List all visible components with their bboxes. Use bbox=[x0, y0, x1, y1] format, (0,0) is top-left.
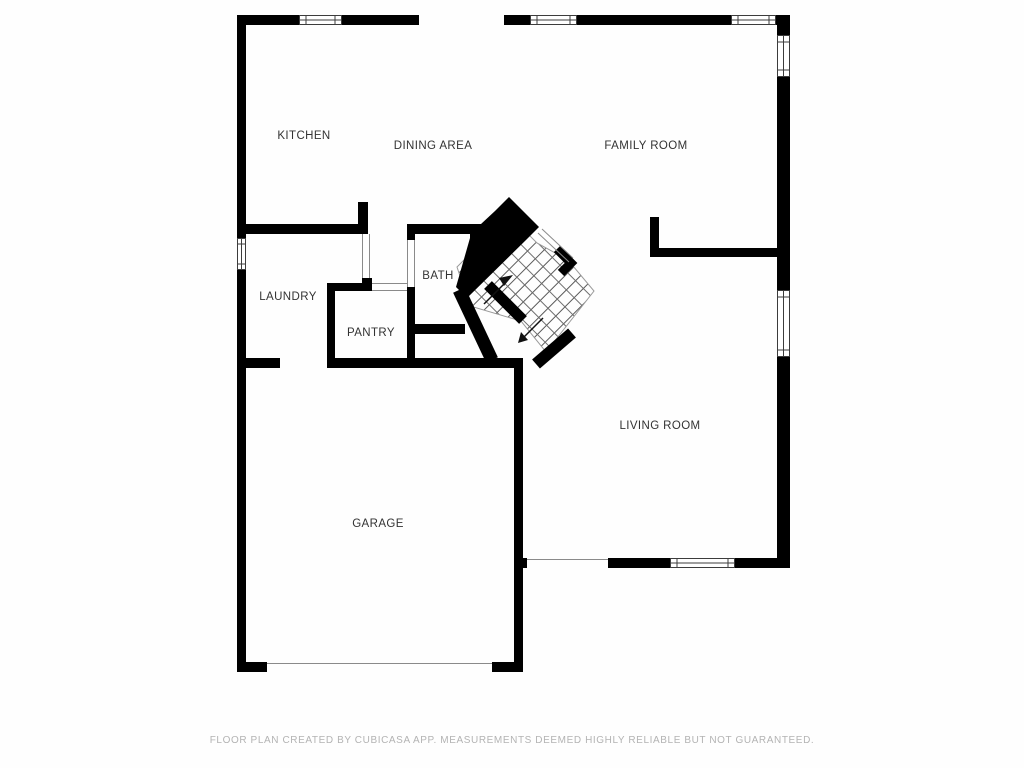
room-label-bath: BATH bbox=[422, 270, 453, 282]
floor-plan-drawing bbox=[0, 0, 1024, 768]
room-label-laundry: LAUNDRY bbox=[259, 291, 317, 303]
window-laundry-left bbox=[238, 239, 246, 270]
exterior-walls bbox=[237, 15, 790, 672]
room-label-pantry: PANTRY bbox=[347, 327, 395, 339]
window-family-right bbox=[778, 36, 790, 77]
window-dining-top bbox=[531, 16, 577, 25]
window-living-bottom bbox=[671, 559, 735, 568]
room-label-family: FAMILY ROOM bbox=[604, 140, 687, 152]
room-label-garage: GARAGE bbox=[352, 518, 404, 530]
floor-plan-page: KITCHEN DINING AREA FAMILY ROOM LAUNDRY … bbox=[0, 0, 1024, 768]
room-label-kitchen: KITCHEN bbox=[277, 130, 330, 142]
window-living-right bbox=[778, 291, 790, 357]
room-label-dining: DINING AREA bbox=[394, 140, 473, 152]
footer-disclaimer: FLOOR PLAN CREATED BY CUBICASA APP. MEAS… bbox=[0, 735, 1024, 746]
window-kitchen-top bbox=[300, 16, 342, 25]
window-family-top bbox=[732, 16, 776, 25]
room-label-living: LIVING ROOM bbox=[619, 420, 700, 432]
